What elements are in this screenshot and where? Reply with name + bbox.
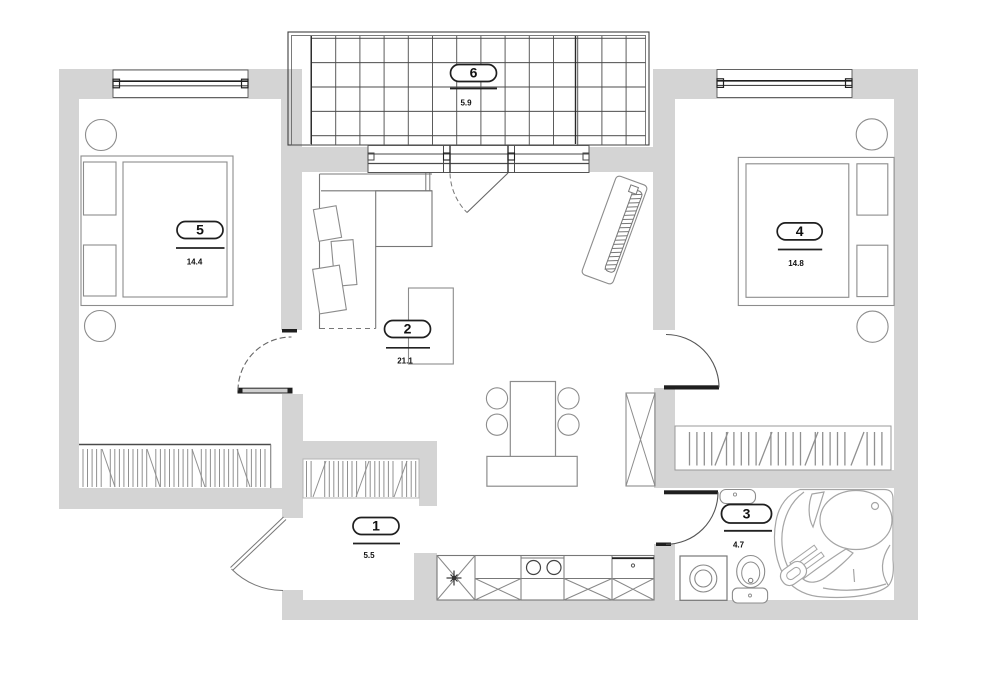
svg-text:1: 1 bbox=[372, 518, 380, 534]
svg-text:2: 2 bbox=[404, 321, 412, 337]
svg-text:5.9: 5.9 bbox=[460, 99, 472, 108]
svg-text:5: 5 bbox=[196, 222, 204, 238]
svg-text:6: 6 bbox=[470, 65, 478, 81]
svg-text:14.4: 14.4 bbox=[187, 258, 203, 267]
svg-text:4.7: 4.7 bbox=[733, 541, 745, 550]
svg-text:5.5: 5.5 bbox=[363, 551, 375, 560]
svg-text:21.1: 21.1 bbox=[397, 357, 413, 366]
svg-text:3: 3 bbox=[743, 506, 751, 522]
svg-text:14.8: 14.8 bbox=[788, 259, 804, 268]
svg-text:4: 4 bbox=[796, 223, 804, 239]
